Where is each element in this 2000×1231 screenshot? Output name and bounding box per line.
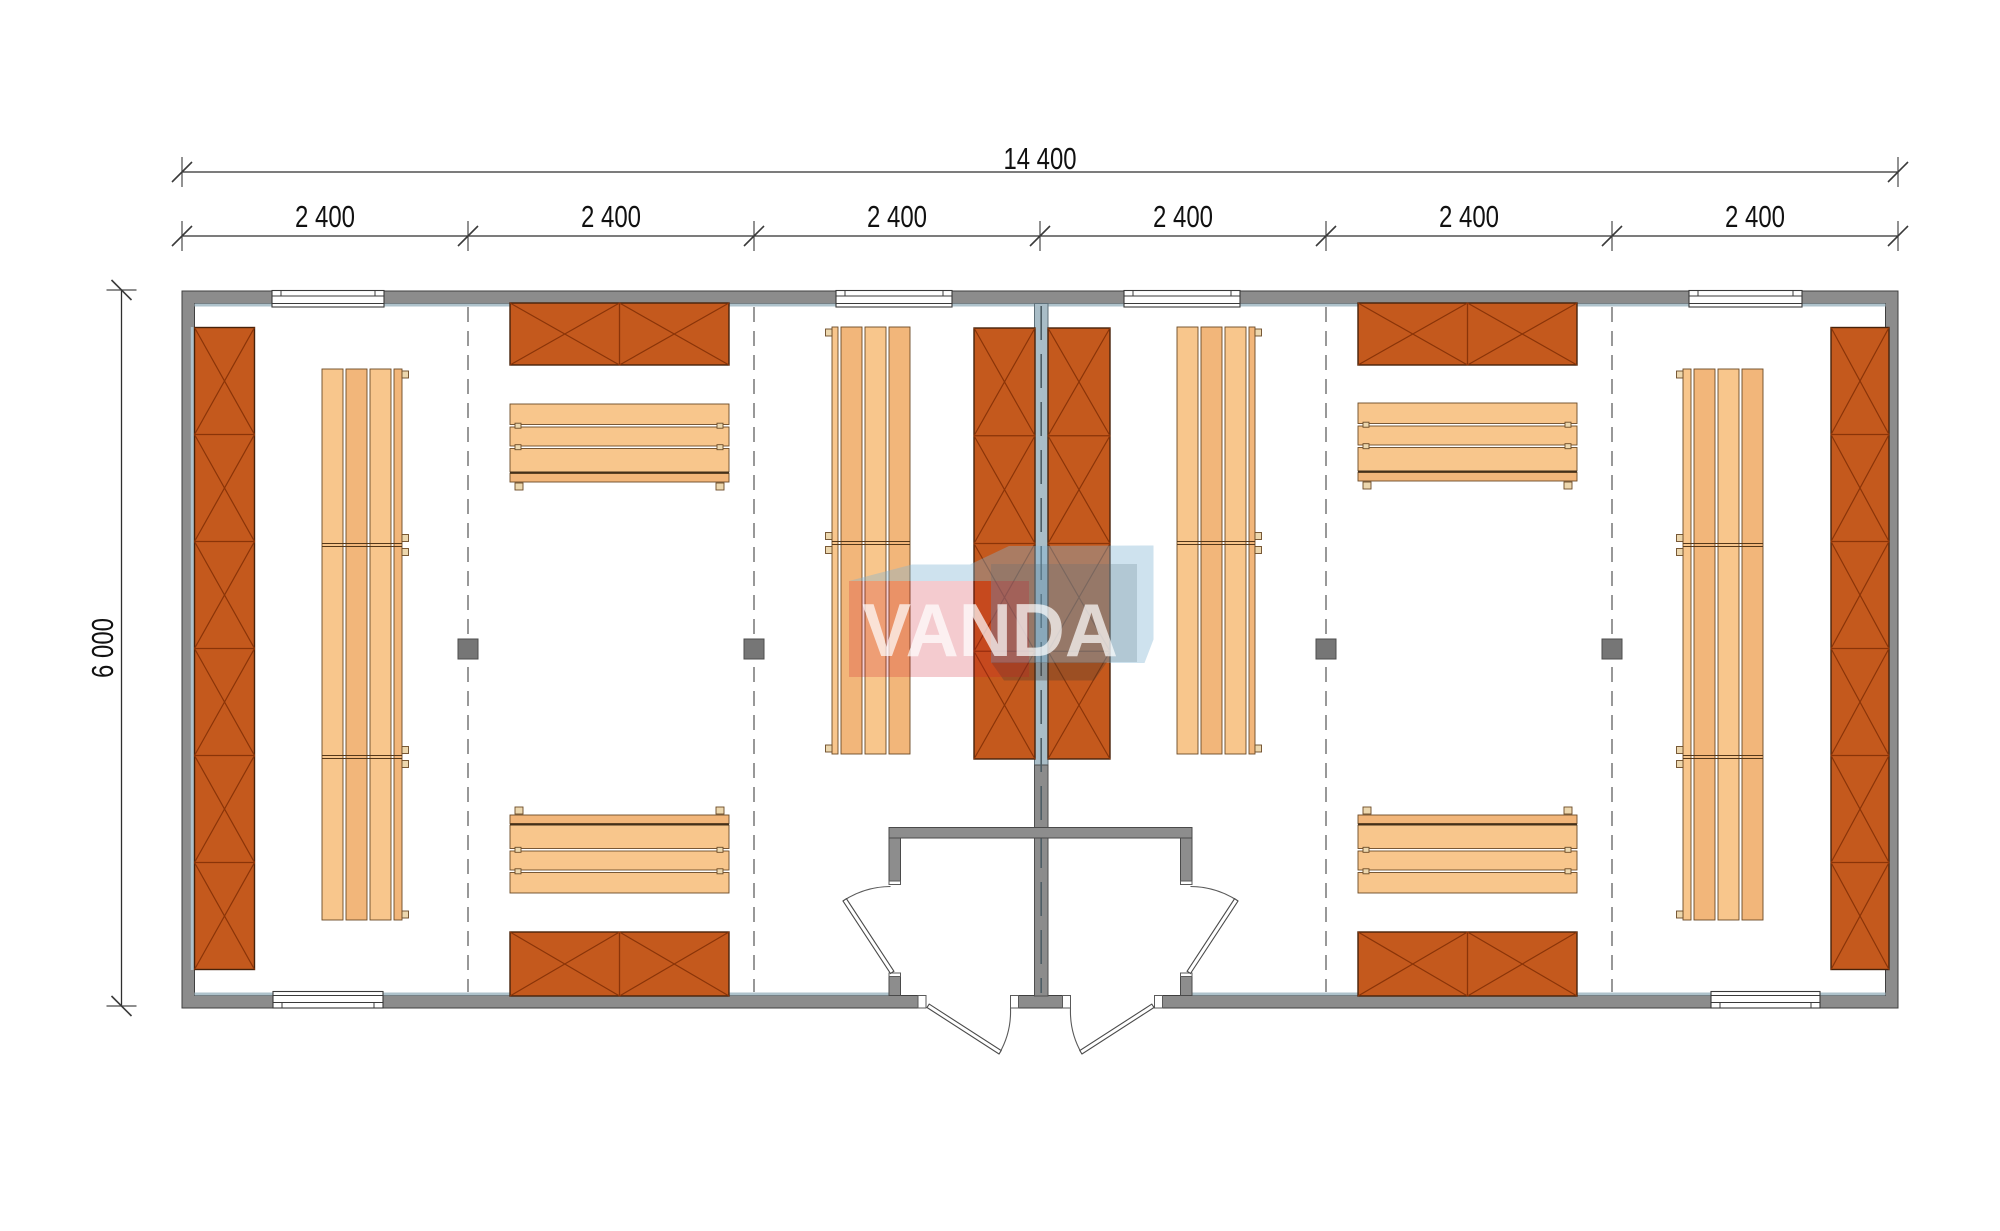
svg-text:2 400: 2 400 — [581, 199, 641, 234]
svg-text:2 400: 2 400 — [1153, 199, 1213, 234]
svg-text:2 400: 2 400 — [295, 199, 355, 234]
svg-text:14 400: 14 400 — [1004, 141, 1077, 176]
svg-text:6 000: 6 000 — [85, 618, 120, 678]
svg-text:2 400: 2 400 — [1439, 199, 1499, 234]
svg-text:2 400: 2 400 — [867, 199, 927, 234]
svg-text:2 400: 2 400 — [1725, 199, 1785, 234]
svg-text:VANDA: VANDA — [862, 588, 1118, 672]
